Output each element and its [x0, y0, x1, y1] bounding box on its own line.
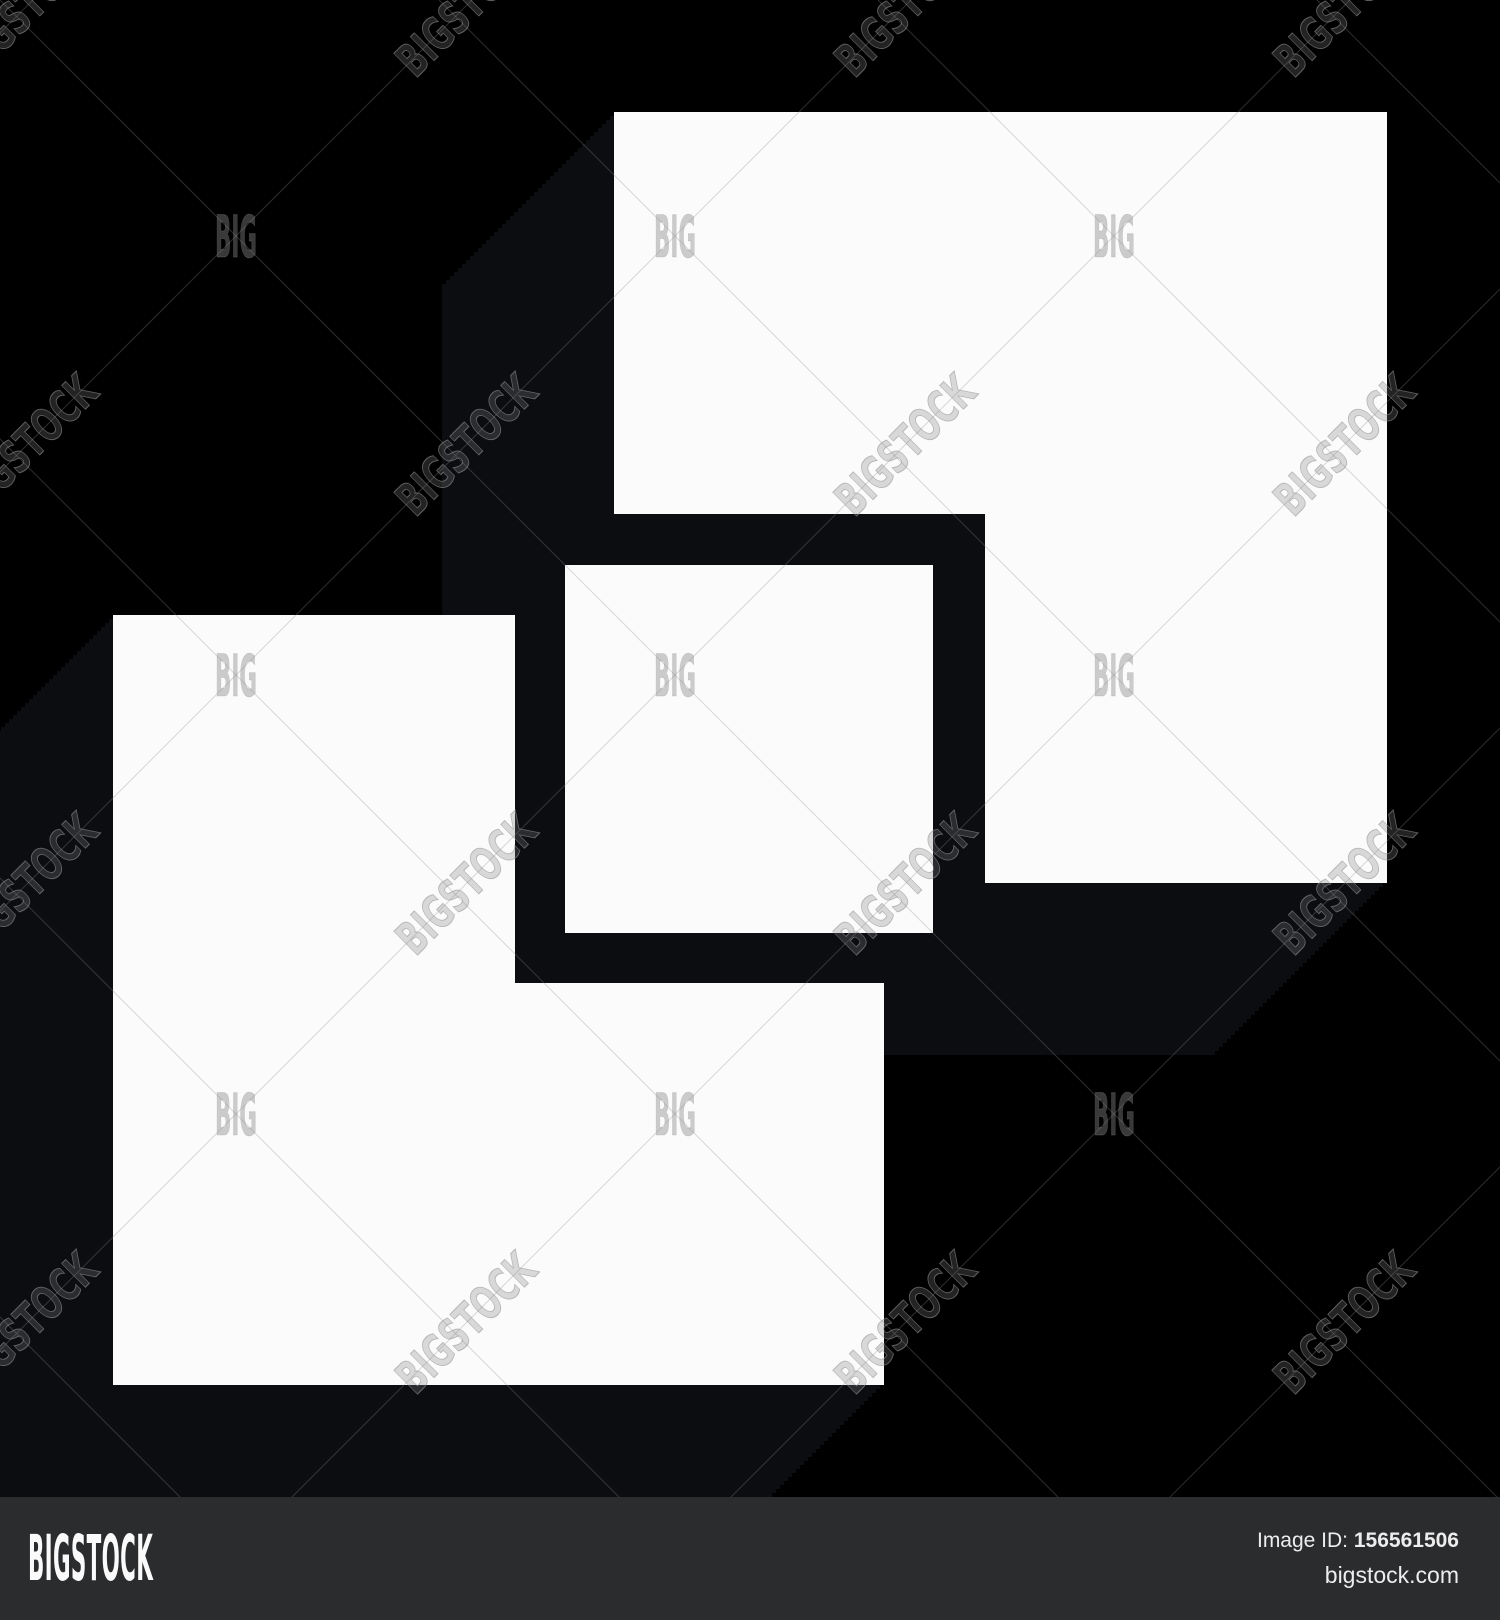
watermark-big-text: BIG: [215, 1081, 257, 1149]
watermark-big-text: BIG: [654, 203, 696, 271]
footer-meta: Image ID: 156561506 bigstock.com: [1257, 1529, 1459, 1588]
layers-icon-canvas: BIGSTOCKBIGSTOCKBIGSTOCKBIGSTOCKBIGSTOCK…: [0, 0, 1500, 1497]
image-id-line: Image ID: 156561506: [1257, 1529, 1459, 1552]
footer-bar: BIGSTOCK Image ID: 156561506 bigstock.co…: [0, 1497, 1500, 1620]
watermark-big-text: BIG: [215, 642, 257, 710]
site-name: bigstock.com: [1257, 1563, 1459, 1588]
bigstock-logo: BIGSTOCK: [28, 1527, 153, 1590]
watermark-big-text: BIG: [215, 203, 257, 271]
stock-image-area: BIGSTOCKBIGSTOCKBIGSTOCKBIGSTOCKBIGSTOCK…: [0, 0, 1500, 1497]
watermark-big-text: BIG: [1093, 203, 1135, 271]
image-id-label: Image ID:: [1257, 1529, 1348, 1552]
bigstock-preview-page: BIGSTOCKBIGSTOCKBIGSTOCKBIGSTOCKBIGSTOCK…: [0, 0, 1500, 1620]
watermark-big-text: BIG: [654, 1081, 696, 1149]
watermark-big-text: BIG: [1093, 1081, 1135, 1149]
image-id-value: 156561506: [1354, 1529, 1459, 1552]
watermark-big-text: BIG: [654, 642, 696, 710]
watermark-big-text: BIG: [1093, 642, 1135, 710]
